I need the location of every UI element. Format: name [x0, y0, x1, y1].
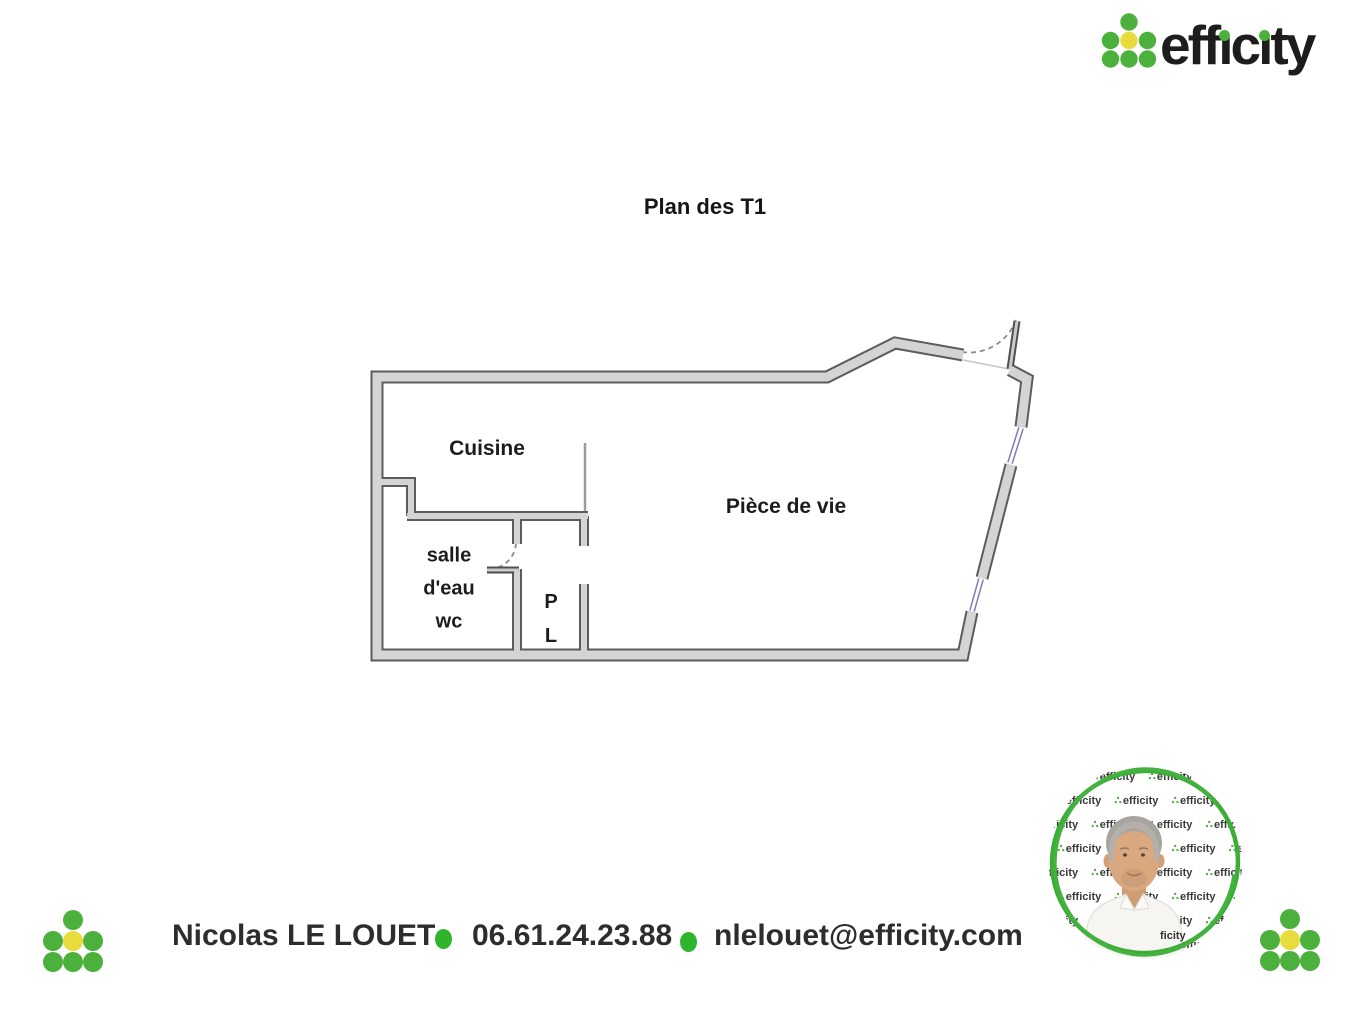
room-label-salle-deau-wc: salle d'eau wc: [423, 540, 474, 639]
green-bullet-icon: [435, 929, 452, 949]
agent-name: Nicolas LE LOUET: [172, 919, 435, 953]
agent-email: nlelouet@efficity.com: [714, 919, 1023, 953]
agent-photo: ∴efficity∴efficity∴efficity∴efficity∴eff…: [1048, 765, 1242, 959]
watermark-fragment: ficity: [1160, 930, 1186, 942]
green-bullet-icon: [680, 932, 697, 952]
room-label-cuisine: Cuisine: [449, 437, 525, 461]
agent-phone: 06.61.24.23.88: [472, 919, 672, 953]
bathroom-door-swing-arc: [489, 542, 516, 569]
entry-door-swing-arc: [962, 320, 1016, 353]
efficity-dots-icon: [1257, 907, 1323, 973]
room-label-piece-de-vie: Pièce de vie: [726, 495, 846, 519]
green-ring-icon: [1045, 762, 1245, 962]
left-wall-notch: [380, 482, 411, 516]
entry-door-threshold: [963, 360, 1009, 369]
page: effıcıty Plan des T1: [0, 0, 1360, 1019]
room-label-placard: P L: [544, 585, 557, 653]
efficity-dots-icon: [40, 908, 106, 974]
